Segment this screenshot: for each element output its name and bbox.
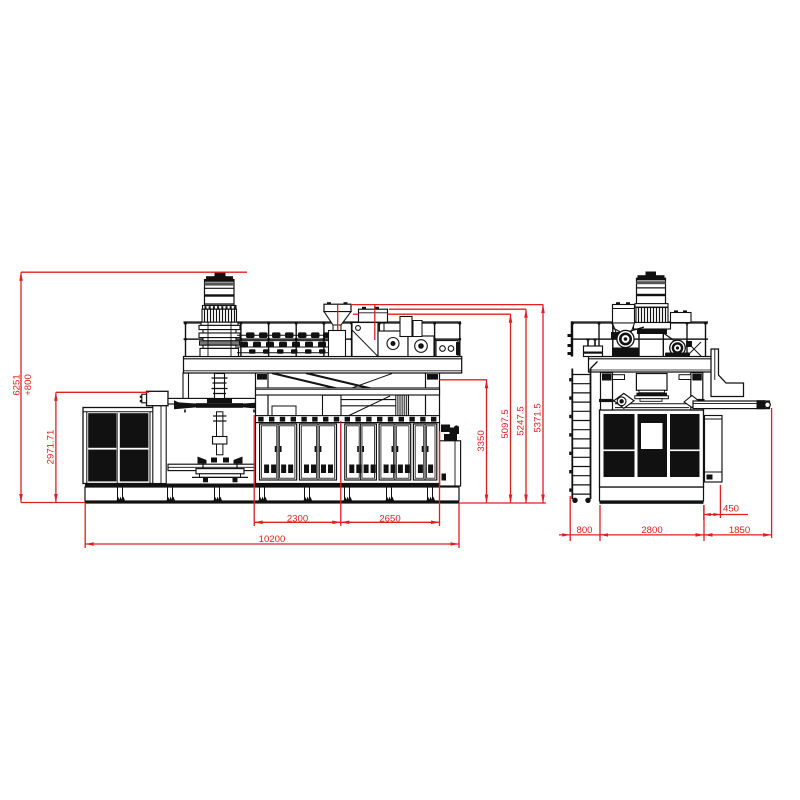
svg-text:2300: 2300 xyxy=(287,514,308,525)
svg-text:2650: 2650 xyxy=(379,514,400,525)
svg-text:2971.71: 2971.71 xyxy=(46,430,57,465)
svg-text:+800: +800 xyxy=(23,374,34,396)
svg-text:6251: 6251 xyxy=(12,374,23,395)
svg-text:450: 450 xyxy=(723,504,739,515)
svg-text:1850: 1850 xyxy=(729,525,750,536)
svg-text:5247.5: 5247.5 xyxy=(516,406,527,435)
svg-text:5097.5: 5097.5 xyxy=(500,409,511,438)
svg-text:800: 800 xyxy=(576,525,592,536)
svg-text:2800: 2800 xyxy=(641,525,662,536)
svg-text:5371.5: 5371.5 xyxy=(533,403,544,432)
svg-text:10200: 10200 xyxy=(259,534,286,545)
svg-text:3350: 3350 xyxy=(476,430,487,451)
